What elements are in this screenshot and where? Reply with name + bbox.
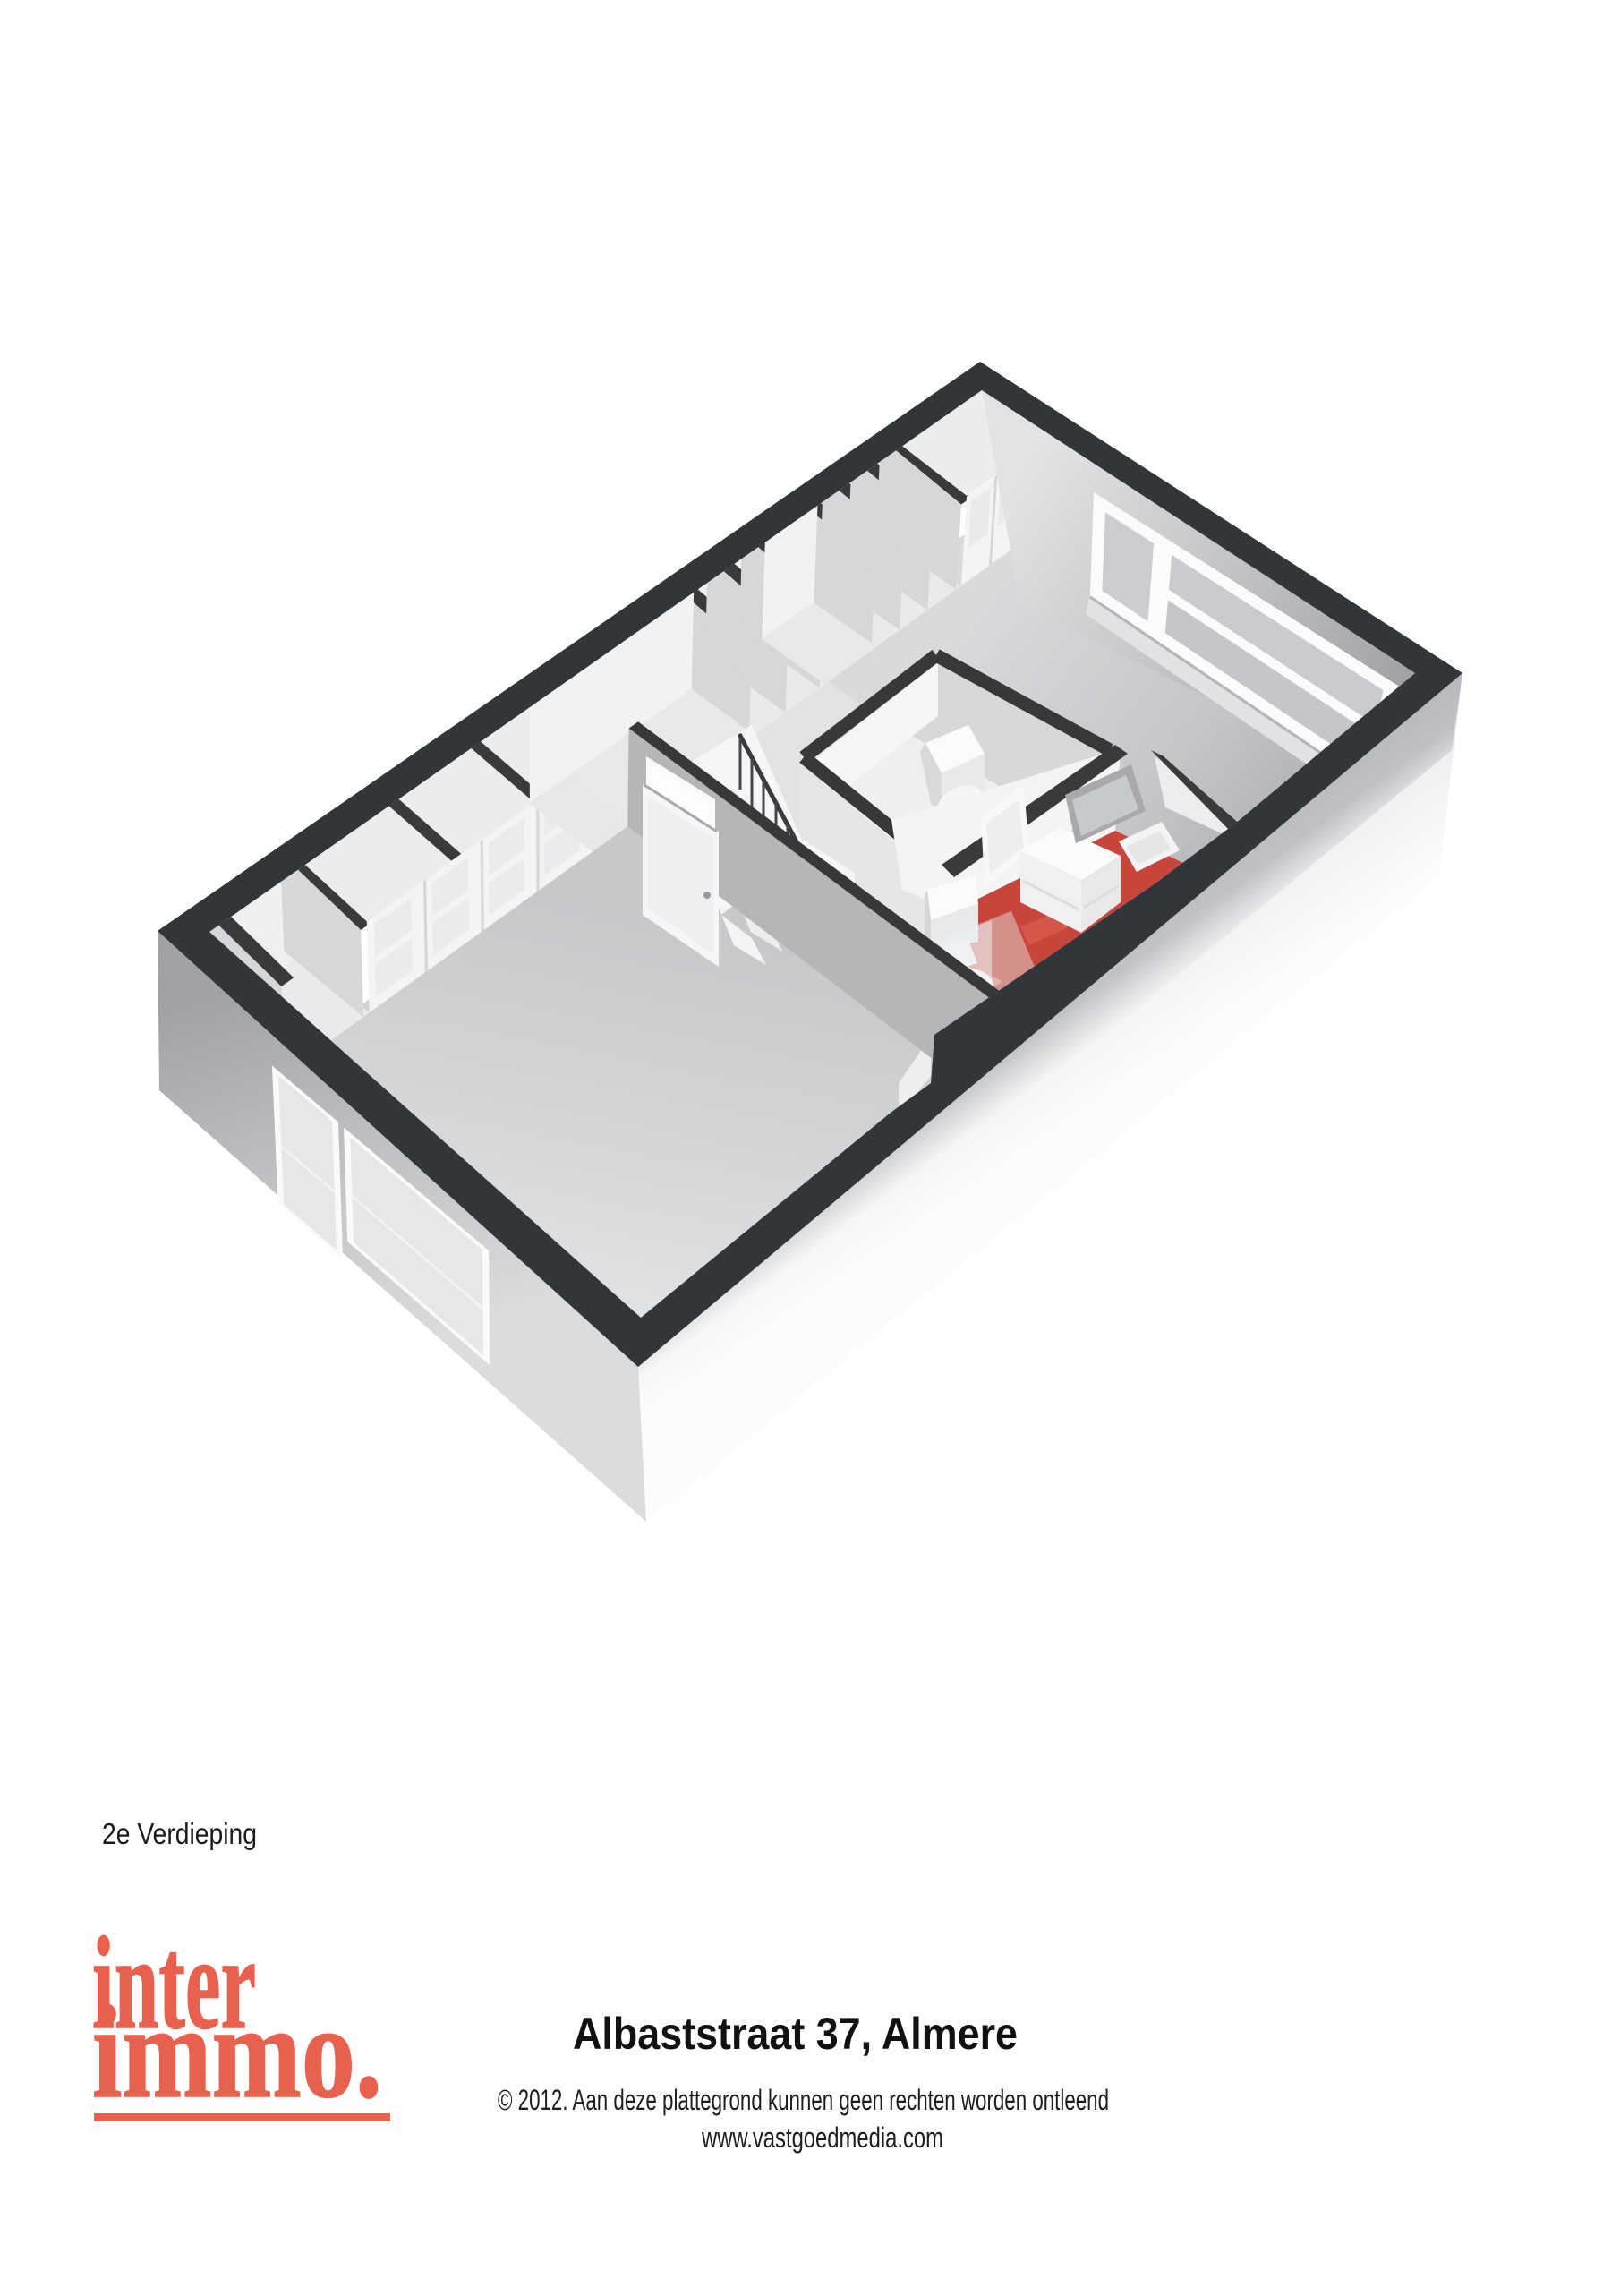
svg-text:2e Verdieping: 2e Verdieping bbox=[102, 1817, 257, 1850]
svg-text:immo.: immo. bbox=[92, 1979, 382, 2126]
svg-text:Albaststraat 37, Almere: Albaststraat 37, Almere bbox=[573, 2009, 1018, 2059]
svg-text:© 2012. Aan deze plattegrond k: © 2012. Aan deze plattegrond kunnen geen… bbox=[498, 2084, 1109, 2116]
svg-text:www.vastgoedmedia.com: www.vastgoedmedia.com bbox=[701, 2121, 943, 2154]
